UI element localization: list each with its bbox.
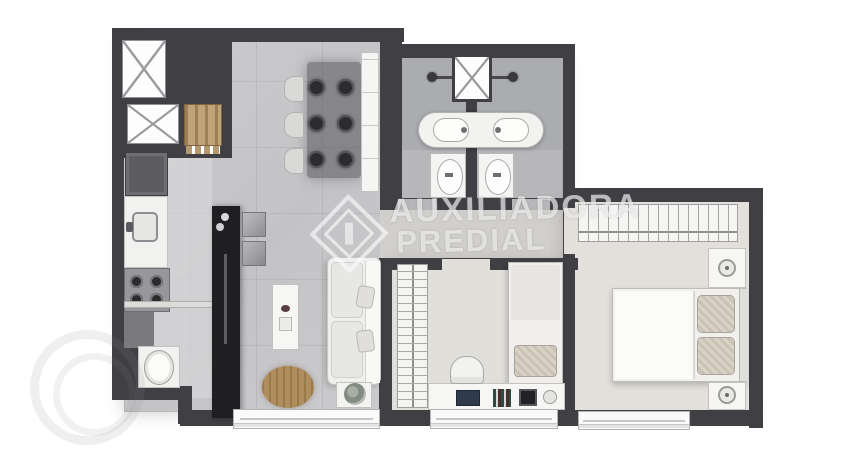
single-bed <box>508 262 563 384</box>
headboard <box>739 289 748 381</box>
dining-chair-dark-2 <box>337 79 354 96</box>
sofa-throw-pillow-2 <box>356 329 376 353</box>
sofa <box>327 257 381 385</box>
shower-head-right <box>508 72 518 82</box>
vanity-faucet-right <box>495 127 501 133</box>
wall-cabinet-2 <box>242 241 266 266</box>
laptop <box>456 390 480 406</box>
plant <box>344 383 366 405</box>
dining-chair-light-3 <box>284 148 304 174</box>
floor-plan-image: AUXILIADORA PREDIAL <box>0 0 850 450</box>
window-living <box>233 409 380 429</box>
picture-frame <box>519 389 537 406</box>
kitchen-sink <box>132 212 158 242</box>
lower-cabinet <box>124 312 154 348</box>
kitchen-faucet <box>126 222 133 232</box>
elevator-shaft-lower <box>127 104 179 144</box>
watermark-line1: AUXILIADORA <box>389 189 641 227</box>
desk-accessory <box>543 390 557 404</box>
wall-master-right <box>749 188 763 428</box>
wall-bathroom-right <box>563 44 575 202</box>
single-bed-pillow <box>514 345 557 377</box>
dining-chair-dark-4 <box>337 115 354 132</box>
brand-watermark: AUXILIADORA PREDIAL <box>311 189 642 272</box>
window-bedroom2 <box>430 409 558 429</box>
coat-rack-knobs <box>186 146 220 154</box>
bedroom2-wardrobe <box>397 264 428 408</box>
island-faucet-dot <box>221 213 229 221</box>
round-wood-rug <box>262 366 314 408</box>
double-bed-sheet <box>615 291 695 379</box>
watermark-diamond-logo-icon <box>311 196 387 272</box>
dining-chair-dark-1 <box>308 79 325 96</box>
island-handle <box>224 254 227 344</box>
corner-watermark-ring <box>30 330 145 445</box>
bathroom-duct-shaft <box>452 54 492 102</box>
desk <box>428 383 565 410</box>
dining-chair-dark-3 <box>308 115 325 132</box>
dining-chair-light-2 <box>284 112 304 138</box>
dining-chair-light-1 <box>284 76 304 102</box>
dining-chair-dark-5 <box>308 151 325 168</box>
kitchen-island <box>212 206 240 418</box>
island-sink-dot <box>216 223 224 231</box>
dining-chair-dark-6 <box>337 151 354 168</box>
master-pillow-1 <box>697 295 735 333</box>
window-master <box>578 411 690 430</box>
elevator-shaft-upper <box>122 40 166 98</box>
master-pillow-2 <box>697 337 735 375</box>
sideboard-bench <box>361 52 379 192</box>
desk-chair <box>450 356 484 384</box>
laundry-tub <box>144 350 174 385</box>
watermark-line2: PREDIAL <box>396 222 642 258</box>
single-bed-blanket <box>511 265 560 320</box>
tv-rack <box>272 284 299 350</box>
sofa-backrest <box>365 261 380 383</box>
double-vanity <box>418 112 544 148</box>
wood-coat-rack <box>184 104 222 146</box>
nightstand-lamp-lower <box>718 386 736 404</box>
vanity-faucet-left <box>461 127 467 133</box>
nightstand-lamp-upper <box>718 259 736 277</box>
tv-rack-item-1 <box>281 305 290 312</box>
refrigerator <box>125 152 168 196</box>
shower-head-left <box>427 72 437 82</box>
tv-rack-item-2 <box>279 317 292 331</box>
double-bed <box>612 288 746 382</box>
books <box>493 389 511 407</box>
wall-cabinet-1 <box>242 212 266 237</box>
